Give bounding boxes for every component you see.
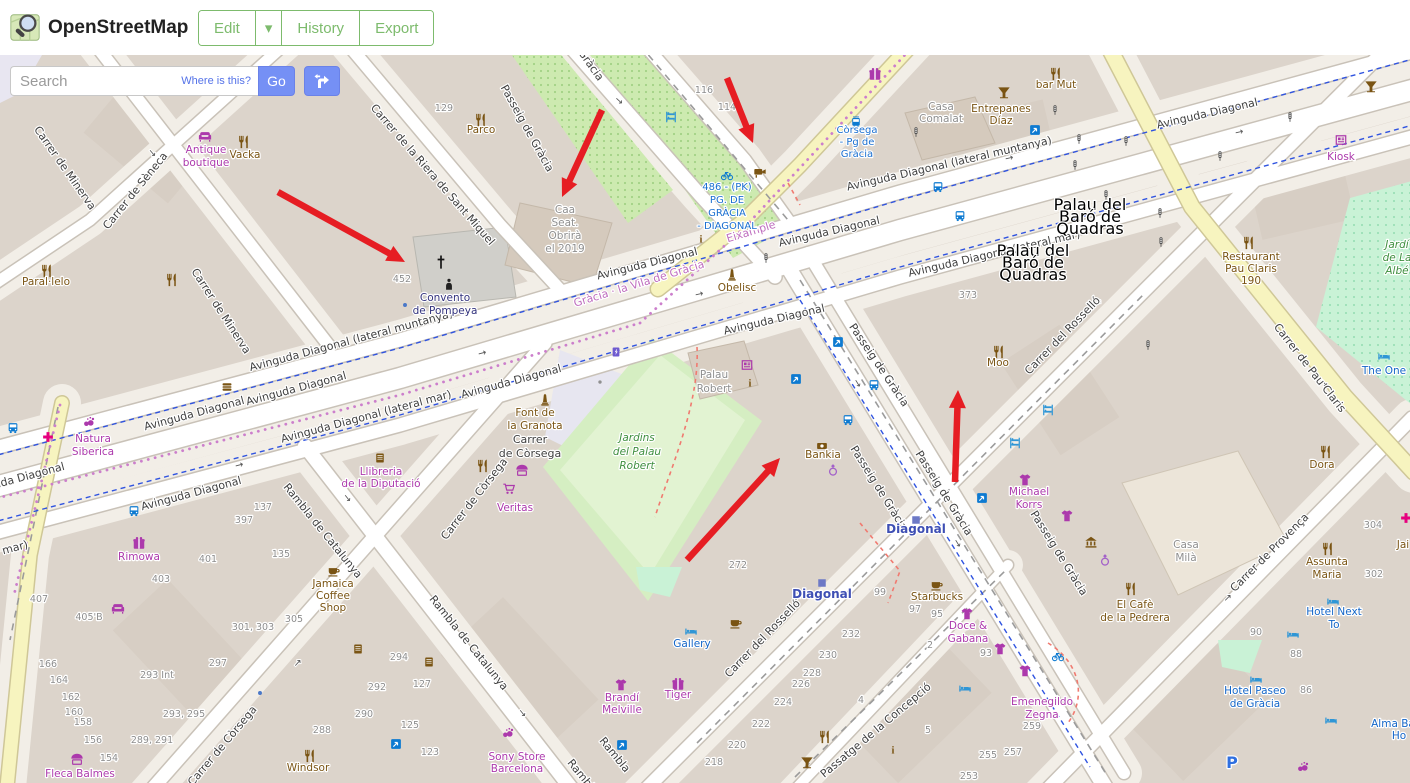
map-label: 129 [435, 103, 453, 114]
map-label: Maria [1312, 569, 1341, 581]
map-label: Palau [700, 369, 728, 381]
map-label: 288 [313, 725, 331, 736]
map-label: 301, 303 [232, 622, 274, 633]
map-label: Casa [928, 101, 954, 113]
map-label: 114 [718, 102, 736, 113]
map-canvas: i [0, 55, 1410, 783]
map-label: 290 [355, 709, 373, 720]
map-label: Gràcia [841, 148, 873, 160]
map-label: 162 [62, 692, 80, 703]
map-label: 5 [925, 725, 931, 736]
map-label: Doce & [949, 620, 987, 632]
metroentry-icon [833, 337, 843, 347]
map-label: Diagonal [792, 587, 852, 601]
map-label: Obelisc [718, 282, 757, 294]
info-icon [700, 234, 703, 245]
map-label: Vacka [230, 149, 261, 161]
map-label: Brandí [605, 692, 640, 704]
metroentry-icon [391, 739, 401, 749]
map-label: 154 [100, 753, 118, 764]
map-label: 292 [368, 682, 386, 693]
map-label: Kiosk [1327, 151, 1356, 163]
map-label: Shop [320, 602, 347, 614]
map-label: - DIAGONAL [697, 221, 757, 232]
map-label: 452 [393, 274, 411, 285]
map-label: 164 [50, 675, 68, 686]
map-label: Melville [602, 704, 642, 716]
map-label: 116 [695, 85, 713, 96]
map-label: Carrer [513, 433, 548, 446]
directions-icon [312, 71, 332, 91]
map-label: Moo [987, 357, 1009, 369]
map-label: - Pg de [840, 137, 875, 148]
map-label: Restaurant [1222, 251, 1279, 263]
charging-icon [613, 348, 620, 357]
map-label: de la Pedrera [1100, 612, 1170, 624]
search-bar: Where is this? Go [10, 66, 340, 96]
map-label: de la Diputació [341, 478, 420, 490]
map-label: 218 [705, 757, 723, 768]
map-label: Llibreria [360, 466, 403, 478]
map-label: 259 [1023, 721, 1041, 732]
map-label: Antique [186, 144, 227, 156]
dotg-icon [598, 380, 601, 383]
map-label: 226 [792, 679, 810, 690]
map-label: Starbucks [911, 591, 963, 603]
map-label: Còrsega [836, 124, 877, 136]
book-icon [354, 645, 362, 654]
map-label: Tiger [664, 689, 692, 701]
map-label: Coffee [316, 590, 350, 602]
map-label: 255 [979, 750, 997, 761]
map-label: de Còrsega [499, 447, 561, 460]
search-input[interactable] [11, 73, 177, 90]
map-label: Entrepanes [971, 103, 1031, 115]
book-icon [376, 454, 384, 463]
dotb-icon [258, 691, 262, 695]
metroentry-icon [977, 493, 987, 503]
map-label: Windsor [287, 762, 330, 774]
map-label: 95 [931, 609, 943, 620]
map-label: 293, 295 [163, 709, 205, 720]
map-label: Ho [1392, 730, 1406, 742]
map-label: Díaz [990, 115, 1013, 127]
map-label: 224 [774, 697, 792, 708]
map-viewport[interactable]: i [0, 55, 1410, 783]
map-label: Robert [697, 383, 732, 395]
where-is-this-link[interactable]: Where is this? [181, 75, 251, 87]
map-label: 297 [209, 658, 227, 669]
map-label: Pau Claris [1225, 263, 1277, 275]
map-label: Hotel Paseo [1224, 685, 1286, 697]
app-title: OpenStreetMap [48, 0, 188, 55]
map-label: 397 [235, 515, 253, 526]
map-label: Quadras [1056, 219, 1123, 238]
map-label: 407 [30, 594, 48, 605]
map-label: 232 [842, 629, 860, 640]
map-label: Jardí [1383, 239, 1410, 251]
export-button[interactable]: Export [359, 11, 433, 45]
map-label: 158 [74, 717, 92, 728]
book-icon [425, 658, 433, 667]
map-label: Alma Ba [1371, 718, 1410, 730]
map-label: Zegna [1025, 709, 1058, 721]
map-label: Siberica [72, 446, 114, 458]
map-label: 253 [960, 771, 978, 782]
go-button[interactable]: Go [258, 66, 295, 96]
map-label: Albé [1384, 265, 1409, 277]
history-button[interactable]: History [281, 11, 359, 45]
map-label: 403 [152, 574, 170, 585]
edit-dropdown-caret[interactable]: ▾ [255, 11, 282, 45]
map-label: Convento [420, 292, 470, 304]
map-label: 4 [858, 695, 864, 706]
map-label: Veritas [497, 502, 533, 514]
map-label: 90 [1250, 627, 1262, 638]
map-label: Paral·lelo [22, 276, 70, 288]
map-label: 93 [980, 648, 992, 659]
osm-logo-icon[interactable] [8, 10, 42, 44]
info-icon [749, 378, 752, 389]
map-label: 302 [1365, 569, 1383, 580]
map-label: 304 [1364, 520, 1382, 531]
map-label: Jai [1396, 539, 1409, 551]
directions-button[interactable] [304, 66, 340, 96]
map-label: boutique [183, 157, 230, 169]
sqm-icon [818, 579, 826, 587]
app-header: OpenStreetMap Edit ▾ History Export [0, 0, 1410, 55]
map-label: 2 [927, 640, 933, 651]
map-label: 190 [1241, 275, 1261, 287]
dotb-icon [403, 303, 407, 307]
map-label: Seat. [551, 217, 578, 229]
map-label: Gabana [948, 633, 989, 645]
map-label: Comalat [919, 113, 963, 125]
map-label: Quadras [999, 265, 1066, 284]
map-label: The One [1361, 365, 1406, 377]
search-box: Where is this? [10, 66, 258, 96]
map-label: 305 [285, 614, 303, 625]
map-label: PG. DE [710, 195, 744, 206]
map-label: el 2019 [545, 243, 584, 255]
burger-icon [223, 383, 232, 391]
map-label: 88 [1290, 649, 1302, 660]
map-label: Obrirà [549, 230, 582, 242]
map-label: Barcelona [491, 763, 543, 775]
metroentry-icon [1030, 125, 1040, 135]
map-label: Jamaica [311, 578, 353, 590]
map-label: 257 [1004, 747, 1022, 758]
map-label: de Gràcia [1230, 698, 1280, 710]
metroentry-icon [791, 374, 801, 384]
map-label: 123 [421, 747, 439, 758]
map-label: To [1327, 619, 1339, 631]
map-label: Gallery [673, 638, 710, 650]
map-label: 272 [729, 560, 747, 571]
map-label: Korrs [1016, 499, 1043, 511]
map-label: 156 [84, 735, 102, 746]
openstreetmap-window: OpenStreetMap Edit ▾ History Export Wher… [0, 0, 1410, 783]
map-label: 127 [413, 679, 431, 690]
map-label: 166 [39, 659, 57, 670]
map-label: Jardins [617, 432, 655, 444]
map-label: Bankia [805, 449, 841, 461]
map-label: Parco [467, 124, 496, 136]
map-label: Sony Store [488, 751, 545, 763]
map-label: 405'B [75, 612, 102, 623]
map-label: Natura [75, 433, 111, 445]
map-label: 486 - (PK) [702, 182, 752, 193]
map-label: la Granota [507, 420, 562, 432]
map-label: de Pompeya [413, 305, 478, 317]
map-label: Assunta [1306, 556, 1348, 568]
map-label: GRÀCIA [708, 206, 746, 219]
map-label: 222 [752, 719, 770, 730]
map-label: Fleca Balmes [45, 768, 115, 780]
map-label: 220 [728, 740, 746, 751]
map-label: 293 Int [140, 670, 174, 681]
map-label: Casa [1173, 539, 1199, 551]
map-label: Rimowa [118, 551, 160, 563]
map-label: Diagonal [886, 522, 946, 536]
map-label: Font de [515, 407, 554, 419]
header-nav-group: Edit ▾ History Export [198, 10, 434, 46]
map-label: 289, 291 [131, 735, 173, 746]
map-label: 86 [1300, 685, 1312, 696]
map-label: Hotel Next [1306, 606, 1362, 618]
map-label: del Palau [613, 446, 661, 458]
map-label: Caa [555, 204, 575, 216]
edit-button[interactable]: Edit [199, 11, 255, 45]
map-label: bar Mut [1036, 79, 1077, 91]
map-label: El Cafè [1117, 599, 1154, 611]
map-label: 99 [874, 587, 886, 598]
map-label: P [1226, 753, 1238, 772]
map-label: Emenegildo [1011, 696, 1073, 708]
map-label: 135 [272, 549, 290, 560]
map-label: 401 [199, 554, 217, 565]
info-icon [892, 745, 895, 756]
map-label: 373 [959, 290, 977, 301]
map-label: 294 [390, 652, 408, 663]
map-label: 125 [401, 720, 419, 731]
map-label: 228 [803, 668, 821, 679]
map-label: Milà [1175, 552, 1196, 564]
map-label: Dora [1309, 459, 1334, 471]
map-label: 230 [819, 650, 837, 661]
map-label: 137 [254, 502, 272, 513]
map-label: de La [1383, 252, 1410, 264]
map-label: Michael [1009, 486, 1049, 498]
map-label: Robert [619, 460, 655, 472]
map-label: 97 [909, 604, 921, 615]
